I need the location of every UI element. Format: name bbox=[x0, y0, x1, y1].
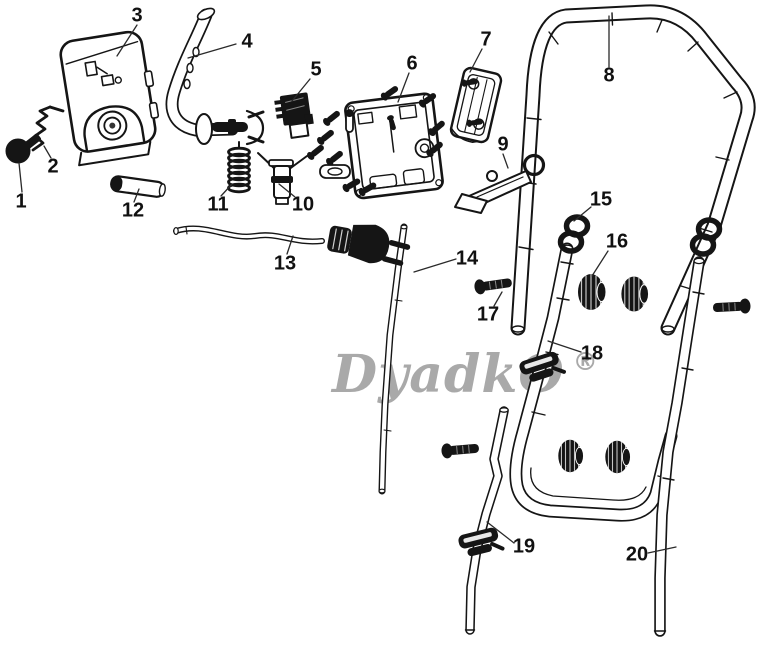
part-label-7: 7 bbox=[480, 29, 491, 52]
part-label-16: 16 bbox=[606, 231, 628, 254]
part-label-8: 8 bbox=[603, 65, 614, 88]
part-15-bushings bbox=[561, 217, 720, 254]
part-label-13: 13 bbox=[274, 253, 296, 276]
part-label-9: 9 bbox=[497, 134, 508, 157]
part-label-10: 10 bbox=[292, 194, 314, 217]
leader-line bbox=[548, 341, 581, 352]
leader-line bbox=[19, 163, 22, 192]
part-label-6: 6 bbox=[406, 53, 417, 76]
part-16-knob-wheels bbox=[558, 274, 648, 473]
part-label-4: 4 bbox=[241, 31, 252, 54]
part-label-15: 15 bbox=[590, 189, 612, 212]
parts-illustration bbox=[0, 0, 767, 648]
part-label-18: 18 bbox=[581, 343, 603, 366]
diagram-canvas: DyadkO® bbox=[0, 0, 767, 648]
part-label-2: 2 bbox=[47, 156, 58, 179]
part-12-pin bbox=[110, 175, 166, 197]
leader-line bbox=[414, 259, 456, 272]
part-label-17: 17 bbox=[477, 304, 499, 327]
part-label-19: 19 bbox=[513, 536, 535, 559]
part-2-spring bbox=[33, 107, 63, 150]
part-19-clamp-leg bbox=[457, 408, 508, 630]
part-4-lever bbox=[172, 6, 263, 144]
leader-line bbox=[592, 251, 608, 276]
part-label-11: 11 bbox=[207, 194, 228, 217]
part-label-14: 14 bbox=[456, 248, 478, 271]
part-label-1: 1 bbox=[15, 191, 26, 214]
part-3-switch-housing bbox=[59, 29, 164, 165]
part-label-3: 3 bbox=[131, 5, 142, 28]
part-label-12: 12 bbox=[122, 200, 144, 223]
part-7-cover-plate bbox=[448, 66, 502, 145]
part-14-rod bbox=[379, 225, 407, 493]
part-6-switchbox-base bbox=[306, 84, 447, 199]
part-label-20: 20 bbox=[626, 544, 648, 567]
part-label-5: 5 bbox=[310, 59, 321, 82]
part-5-switch bbox=[274, 92, 316, 140]
